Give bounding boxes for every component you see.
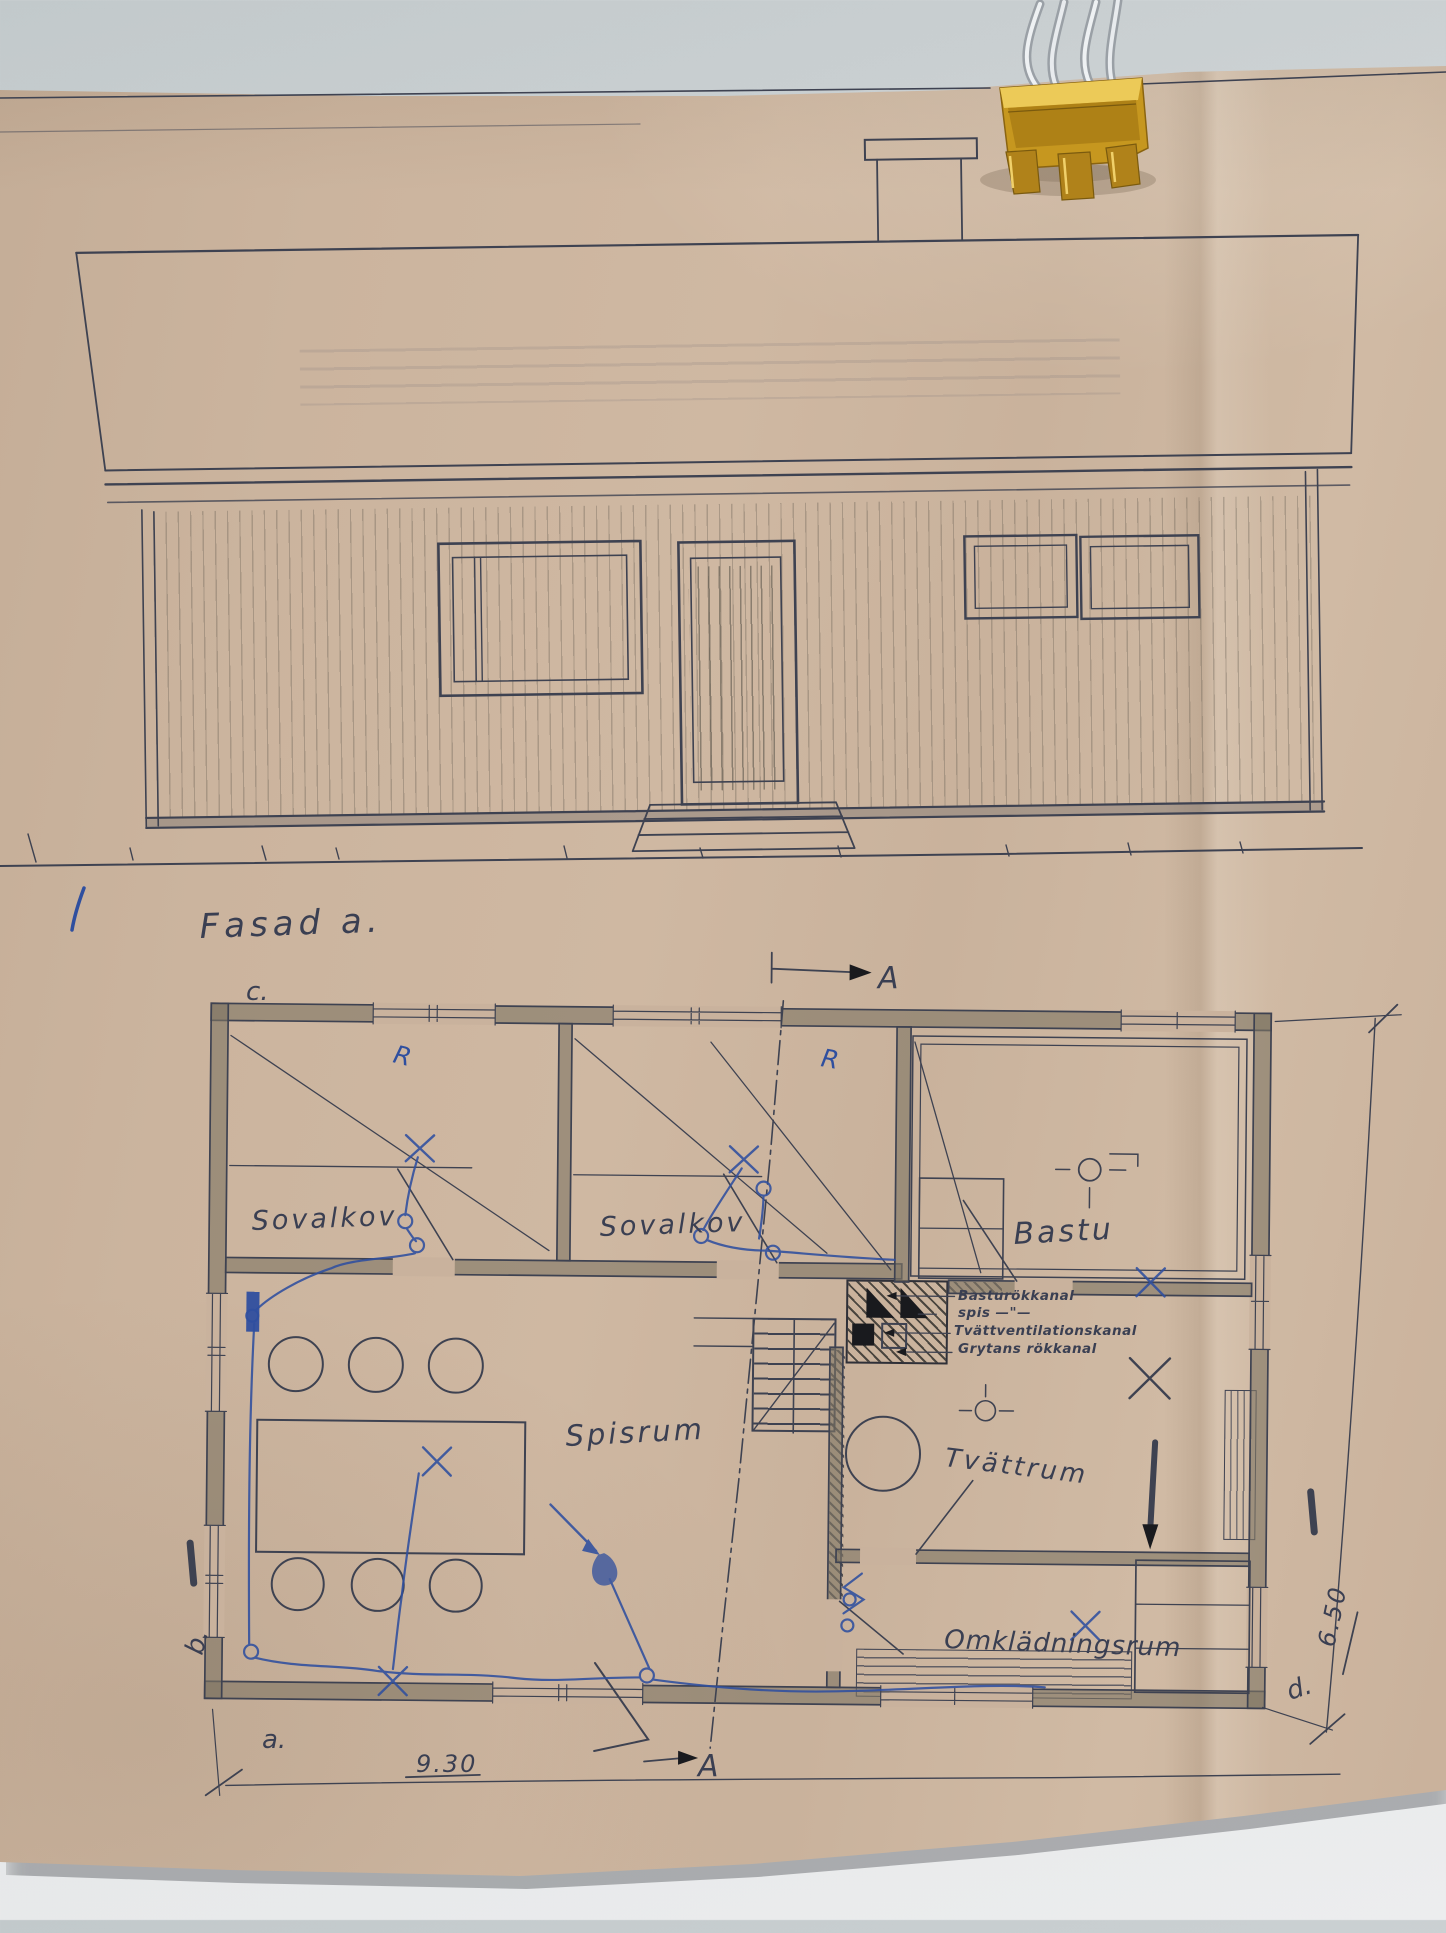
facade-title: Fasad a. (199, 901, 383, 947)
room-label-sovalkov-1: Sovalkov (251, 1201, 398, 1237)
flue-note-3: Tvättventilationskanal (954, 1323, 1137, 1339)
facade-wall (142, 470, 1325, 828)
floor-plan (188, 947, 1402, 1807)
chimney-flues (852, 1287, 955, 1356)
paper-border-rules (0, 72, 1446, 132)
roof (76, 235, 1361, 503)
pen-mark-r2: R (819, 1043, 841, 1075)
interior-walls (222, 1020, 1254, 1691)
dining-furniture (255, 1337, 526, 1613)
pen-mark-r1: R (391, 1040, 415, 1072)
room-label-tvattrum: Tvättrum (943, 1443, 1090, 1490)
corner-marker-d: d. (1283, 1670, 1316, 1706)
clip-handles (1027, 0, 1118, 88)
photo-of-blueprint: { "colors":{"paper":"#c9b29c","wall":"#d… (0, 0, 1446, 1920)
stair-lines (693, 1318, 834, 1433)
pen-check-mark (72, 888, 84, 930)
room-label-sovalkov-2: Sovalkov (599, 1207, 746, 1243)
corner-marker-c: c. (246, 977, 269, 1007)
binder-clip (980, 0, 1156, 200)
plan-labels: Sovalkov Sovalkov Bastu Spisrum Tvättrum… (180, 961, 1353, 1784)
room-label-spisrum: Spisrum (565, 1412, 706, 1453)
facade-elevation (75, 133, 1367, 859)
facade-windows-right (964, 533, 1199, 620)
width-dimension: 9.30 (416, 1750, 477, 1778)
flue-note-1: Basturökkanal (958, 1288, 1074, 1304)
clip-body (1000, 78, 1148, 200)
outlet-circles (243, 1177, 860, 1685)
room-label-omkladningsrum: Omklädningsrum (944, 1625, 1182, 1663)
facade-door (678, 541, 798, 805)
drawing-linework: Fasad a. c. (0, 0, 1446, 1920)
section-marker-bottom: A (696, 1749, 719, 1784)
flue-note-2: spis —"— (958, 1305, 1031, 1321)
chimney (865, 138, 978, 242)
changing-room-interior (1135, 1560, 1250, 1693)
flue-note-4: Grytans rökkanal (958, 1341, 1097, 1357)
section-marker-top: A (876, 961, 899, 996)
wall-windows (203, 1001, 1274, 1710)
room-label-bastu: Bastu (1013, 1212, 1115, 1252)
corner-marker-a: a. (262, 1725, 286, 1755)
pendant-lamp-symbol (550, 1505, 618, 1586)
facade-window-left (438, 541, 642, 696)
outer-walls (205, 1003, 1272, 1708)
depth-dimension: 6.50 (1312, 1583, 1352, 1649)
